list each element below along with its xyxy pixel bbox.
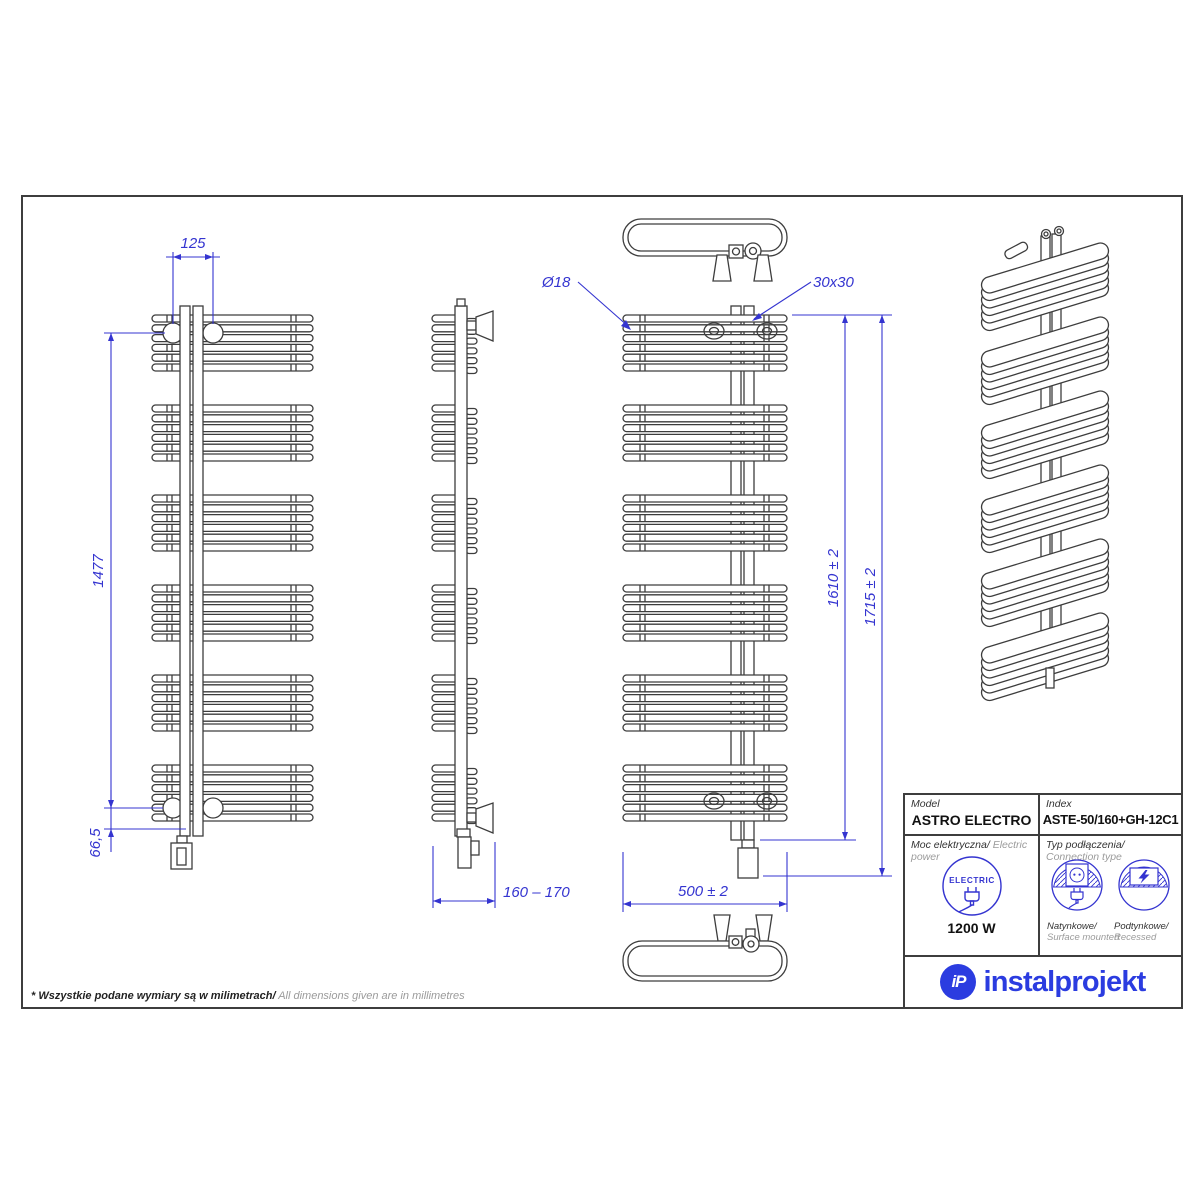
tube [152,724,313,731]
dim-diameter-label: Ø18 [541,274,571,291]
heater-detail [177,848,186,865]
tube [623,515,787,522]
tube [623,315,787,322]
brand-logo-icon: iP [940,964,976,1000]
tube [623,534,787,541]
tube-array [623,315,787,821]
brand-logo: iP instalprojekt [905,957,1181,1007]
heater-box [471,841,479,855]
model-cell: Model ASTRO ELECTRO [905,795,1040,834]
heater-housing [738,848,758,878]
dim-profile-label: 30x30 [813,274,855,291]
heater-gland-hole [748,941,754,947]
tube [623,544,787,551]
tube [152,315,313,322]
dim-diameter: Ø18 [541,274,631,330]
wall-bracket [714,915,730,941]
tube [623,634,787,641]
dim-125-label: 125 [180,235,206,252]
wall-bracket [1004,241,1029,260]
wall-bracket [756,915,772,941]
tube [623,434,787,441]
dim-66-5-label: 66,5 [87,828,104,858]
tube [152,605,313,612]
tube [152,704,313,711]
tube [623,704,787,711]
surface-mounted-icon [1050,858,1104,912]
surface-mounted-option: Natynkowe/Surface mounted [1047,858,1107,943]
rail-cap [457,299,465,306]
tube [152,354,313,361]
technical-drawing-sheet: 125 1477 66,5 [0,0,1200,1200]
dim-1715-label: 1715 ± 2 [862,567,879,626]
tube [152,765,313,772]
tube [623,344,787,351]
tube [623,585,787,592]
top-view [623,219,787,281]
dim-width-label: 500 ± 2 [678,883,729,900]
drawing-frame: 125 1477 66,5 [21,195,1183,1009]
tube [152,515,313,522]
wall-bracket [713,255,731,281]
tube [623,454,787,461]
dimensions-note: * Wszystkie podane wymiary są w milimetr… [31,990,465,1002]
tube [152,454,313,461]
dim-width: 500 ± 2 [623,852,787,912]
front-view-left [152,306,313,869]
connection-port-hole [1057,229,1061,233]
brand-logo-text: instalprojekt [983,966,1145,999]
tube [623,505,787,512]
recessed-icon [1117,858,1171,912]
tube-loop-outer [623,941,787,981]
tube [623,685,787,692]
tube [623,605,787,612]
mounting-point [203,798,223,818]
tube [152,364,313,371]
tube [152,444,313,451]
iso-view [980,227,1111,703]
index-value: ASTE-50/160+GH-12C1 [1040,812,1181,827]
foot-stub [1046,668,1054,688]
tube [152,425,313,432]
wall-bracket [754,255,772,281]
dim-depth-label: 160 – 170 [503,884,570,901]
tube [152,344,313,351]
tube [152,695,313,702]
tube [623,524,787,531]
power-value: 1200 W [905,920,1038,936]
collector-rail [193,306,203,836]
tube [623,614,787,621]
tube [623,595,787,602]
dim-depth: 160 – 170 [433,842,570,908]
tube [152,624,313,631]
collector-rail [455,306,467,836]
heater-neck [177,836,187,843]
electric-icon: ELECTRIC [905,854,1038,923]
tube [623,624,787,631]
tube [623,415,787,422]
tube [152,415,313,422]
wall-bracket [476,311,493,341]
tube [623,695,787,702]
tube [623,724,787,731]
tube [152,434,313,441]
collector-rail [744,306,754,840]
power-cell: Moc elektryczna/ Electric power ELECTRIC [905,836,1040,955]
mounting-point [203,323,223,343]
tube [152,785,313,792]
side-view [432,299,493,868]
tube [623,425,787,432]
connection-icons: Natynkowe/Surface mounted Podtynkowe/Rec… [1040,858,1181,943]
tube [152,675,313,682]
model-value: ASTRO ELECTRO [905,812,1038,828]
tube [623,364,787,371]
tube [152,585,313,592]
wall-bracket [476,803,493,833]
electric-icon-text: ELECTRIC [949,876,995,885]
collector-top-hole [750,248,757,255]
wall-bracket-stem [467,813,476,822]
tube-array [152,315,313,821]
connection-cell: Typ podłączenia/Connection type [1040,836,1181,955]
tube [152,595,313,602]
tube [152,495,313,502]
tube [623,714,787,721]
tube [623,765,787,772]
fitting-hole [732,939,739,946]
collector-rail [180,306,190,836]
tube [152,505,313,512]
fitting-hole [733,248,740,255]
model-label: Model [905,795,1038,810]
dim-1610-label: 1610 ± 2 [825,548,842,607]
heater-neck [742,840,754,848]
index-label: Index [1040,795,1181,810]
title-block: Model ASTRO ELECTRO Index ASTE-50/160+GH… [903,793,1181,1007]
tube [152,614,313,621]
collector-rail [731,306,741,840]
title-row-model-index: Model ASTRO ELECTRO Index ASTE-50/160+GH… [905,795,1181,836]
tube [152,405,313,412]
recessed-option: Podtynkowe/Recessed [1114,858,1174,943]
tube [623,495,787,502]
tube [152,544,313,551]
dim-1477: 1477 [90,333,165,808]
index-cell: Index ASTE-50/160+GH-12C1 [1040,795,1181,834]
front-view-middle [623,306,787,878]
tube [623,785,787,792]
tube [623,814,787,821]
dim-1477-label: 1477 [90,554,107,588]
tube [152,775,313,782]
heater-neck [457,829,470,837]
tube [152,685,313,692]
tube [623,444,787,451]
tube [152,534,313,541]
tube [623,775,787,782]
title-row-power-connection: Moc elektryczna/ Electric power ELECTRIC [905,836,1181,957]
tube [152,524,313,531]
tube [623,405,787,412]
tube [152,714,313,721]
tube [623,675,787,682]
wall-bracket-stem [467,321,476,330]
heater-housing [458,837,471,868]
tube [623,354,787,361]
connection-port-hole [1044,232,1048,236]
bottom-view [623,915,787,981]
tube [152,634,313,641]
